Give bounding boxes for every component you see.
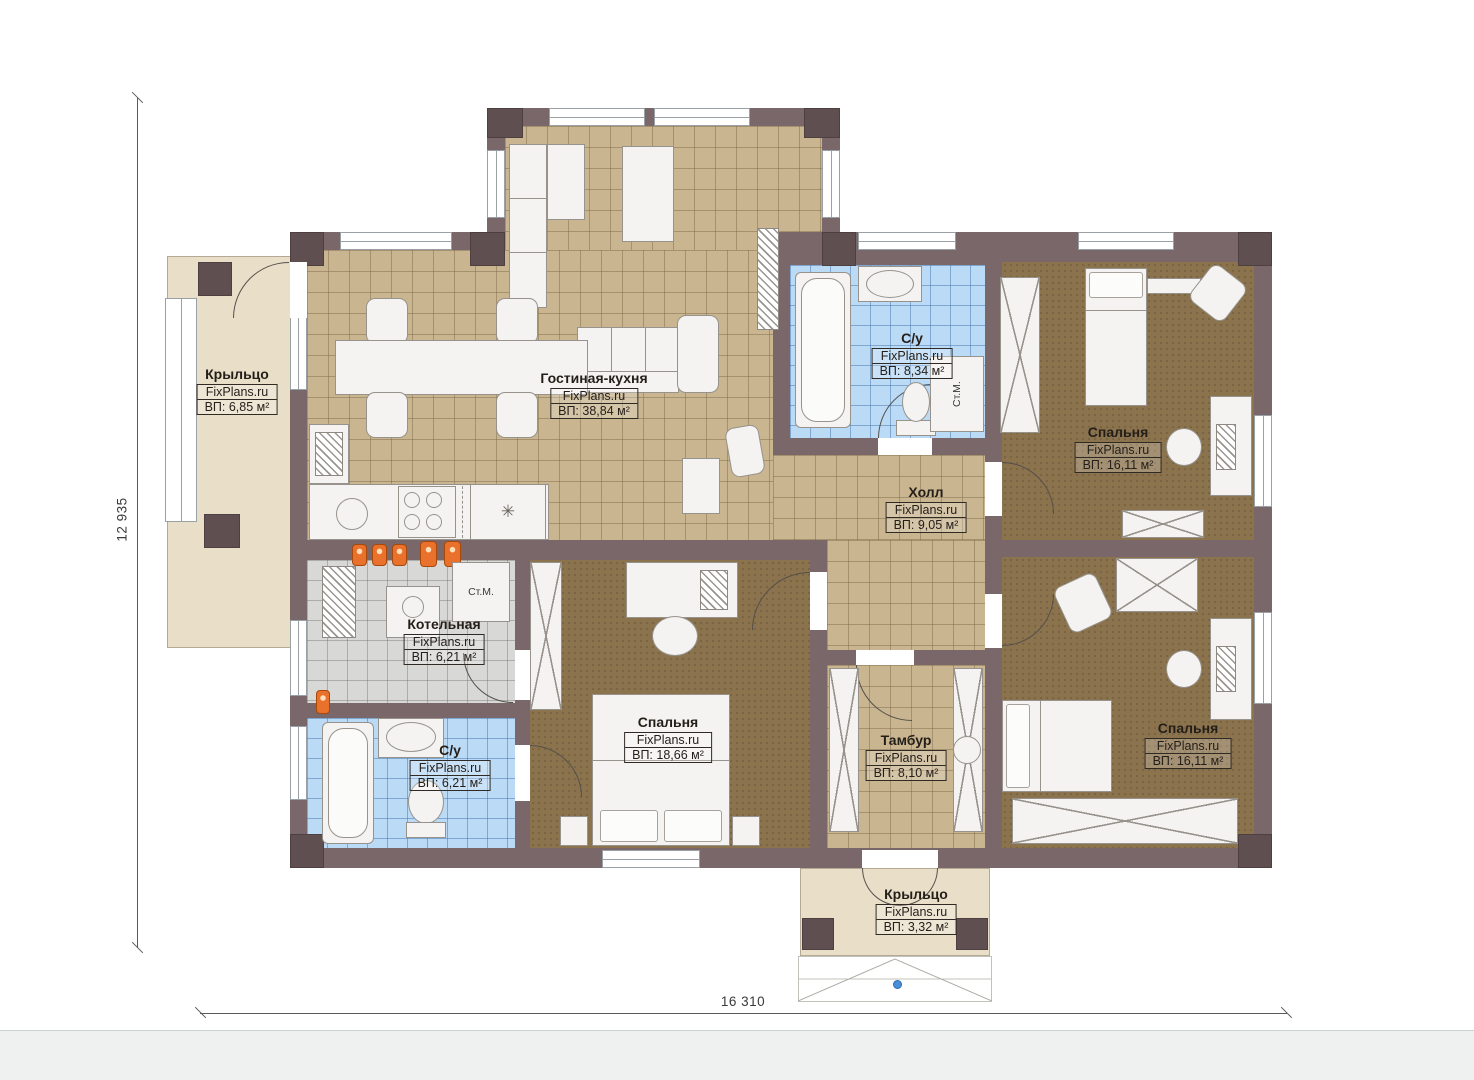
room-label-bathroom-bottom: С/у FixPlans.ru ВП: 6,21 м²: [410, 742, 491, 792]
washing-machine: Ст.М.: [452, 562, 510, 622]
watermark: FixPlans.ru: [625, 733, 711, 748]
porch-left-steps: [165, 298, 197, 522]
room-label-box: FixPlans.ru ВП: 16,11 м²: [1075, 442, 1162, 473]
bathtub-basin: [801, 278, 845, 422]
armchair: [677, 315, 719, 393]
sofa-cushion-line: [645, 327, 646, 371]
room-name: Котельная: [404, 616, 485, 632]
floor-plan-canvas: 12 935 16 310: [0, 0, 1474, 1080]
sofa-cushion-line: [509, 198, 547, 199]
desk-chair: [1166, 650, 1202, 688]
dimension-label-height: 12 935: [115, 468, 130, 572]
door-opening-bedroom-bottom-right: [985, 594, 1002, 648]
toilet: [902, 382, 930, 422]
window: [858, 232, 956, 250]
room-label-box: FixPlans.ru ВП: 6,21 м²: [404, 634, 485, 665]
room-label-bedroom-bottom-right: Спальня FixPlans.ru ВП: 16,11 м²: [1145, 720, 1232, 770]
wall-corner-block: [804, 108, 840, 138]
room-name: Спальня: [624, 714, 712, 730]
window: [654, 108, 750, 126]
door-opening-porch-bottom: [862, 850, 938, 868]
mirror: [953, 736, 981, 764]
stove-burner: [426, 514, 442, 530]
room-label-box: FixPlans.ru ВП: 9,05 м²: [886, 502, 967, 533]
dimension-line-horizontal: [200, 1013, 1287, 1014]
room-label-bedroom-top-right: Спальня FixPlans.ru ВП: 16,11 м²: [1075, 424, 1162, 474]
room-label-porch-bottom: Крыльцо FixPlans.ru ВП: 3,32 м²: [876, 886, 957, 936]
fridge-snowflake-icon: ✳: [501, 502, 515, 522]
corner-sofa-chaise: [547, 144, 585, 220]
wall-corner-block: [487, 108, 523, 138]
wardrobe-long: [1012, 798, 1238, 844]
watermark: FixPlans.ru: [867, 751, 946, 766]
bathtub: [322, 722, 374, 844]
wall-corner-block: [290, 232, 324, 266]
window: [549, 108, 645, 126]
dining-chair: [366, 298, 408, 344]
room-name: Тамбур: [866, 732, 947, 748]
room-label-living-kitchen: Гостиная-кухня FixPlans.ru ВП: 38,84 м²: [540, 370, 647, 420]
porch-column: [956, 918, 988, 950]
tv-cabinet: [622, 146, 674, 242]
blanket-line: [1040, 700, 1041, 792]
boiler-equipment: [322, 566, 356, 638]
room-label-boiler: Котельная FixPlans.ru ВП: 6,21 м²: [404, 616, 485, 666]
room-label-box: FixPlans.ru ВП: 8,10 м²: [866, 750, 947, 781]
dresser: [1122, 510, 1204, 538]
window: [290, 620, 307, 696]
door-opening-bedroom-top-right: [985, 462, 1002, 516]
porch-bottom-steps: [798, 956, 992, 1002]
desk-items: [700, 570, 728, 610]
bathtub-basin: [328, 728, 368, 838]
water-heater-dial: [402, 596, 424, 618]
room-name: Спальня: [1145, 720, 1232, 736]
sofa-cushion-line: [611, 327, 612, 371]
watermark: FixPlans.ru: [411, 761, 490, 776]
desk-chair: [1166, 428, 1202, 466]
room-label-vestibule: Тамбур FixPlans.ru ВП: 8,10 м²: [866, 732, 947, 782]
window: [340, 232, 452, 250]
wardrobe: [530, 562, 562, 710]
wall-corner-block: [470, 232, 505, 266]
room-area: ВП: 6,85 м²: [198, 400, 277, 414]
room-label-porch-left: Крыльцо FixPlans.ru ВП: 6,85 м²: [197, 366, 278, 416]
radiator-icon: [392, 544, 407, 566]
radiator-icon: [352, 544, 367, 566]
wall-corner-block: [290, 834, 324, 868]
window: [1254, 612, 1272, 704]
window: [290, 726, 307, 800]
plan-marker-dot: [893, 980, 902, 989]
stove-burner: [426, 492, 442, 508]
wall-corner-block: [1238, 834, 1272, 868]
porch-column: [802, 918, 834, 950]
room-label-box: FixPlans.ru ВП: 8,34 м²: [872, 348, 953, 379]
page-bottom-band: [0, 1031, 1474, 1080]
room-label-box: FixPlans.ru ВП: 3,32 м²: [876, 904, 957, 935]
pillow: [1089, 272, 1143, 298]
watermark: FixPlans.ru: [877, 905, 956, 920]
dining-chair: [496, 392, 538, 438]
built-in-cabinet: [757, 228, 779, 330]
watermark: FixPlans.ru: [405, 635, 484, 650]
room-area: ВП: 9,05 м²: [887, 518, 966, 532]
dining-chair: [496, 298, 538, 344]
watermark: FixPlans.ru: [873, 349, 952, 364]
desk-items: [1216, 424, 1236, 470]
hall-cabinet: [829, 668, 859, 832]
room-label-box: FixPlans.ru ВП: 6,85 м²: [197, 384, 278, 415]
nightstand: [732, 816, 760, 846]
door-opening-vestibule: [856, 650, 914, 665]
room-label-box: FixPlans.ru ВП: 16,11 м²: [1145, 738, 1232, 769]
room-area: ВП: 16,11 м²: [1076, 458, 1161, 472]
room-area: ВП: 8,10 м²: [867, 766, 946, 780]
door-opening-bathroom-bottom: [515, 745, 530, 801]
watermark: FixPlans.ru: [887, 503, 966, 518]
fridge: ✳: [470, 484, 546, 540]
watermark: FixPlans.ru: [198, 385, 277, 400]
washing-machine-label: Ст.М.: [453, 563, 509, 621]
counter-divider: [462, 486, 463, 538]
window: [1254, 415, 1272, 507]
blanket-line: [1085, 310, 1147, 311]
room-name: Гостиная-кухня: [540, 370, 647, 386]
bathtub: [795, 272, 851, 428]
wall-corner-block: [1238, 232, 1272, 266]
sink: [866, 270, 914, 298]
room-label-box: FixPlans.ru ВП: 38,84 м²: [550, 388, 638, 419]
room-name: Спальня: [1075, 424, 1162, 440]
room-name: С/у: [410, 742, 491, 758]
door-opening-bathroom-top: [878, 438, 932, 455]
window: [822, 150, 840, 218]
room-area: ВП: 6,21 м²: [405, 650, 484, 664]
coffee-table: [682, 458, 720, 514]
door-opening-boiler: [515, 650, 530, 700]
wall-corner-block: [822, 232, 856, 266]
kitchen-sink: [336, 498, 368, 530]
nightstand: [560, 816, 588, 846]
room-area: ВП: 3,32 м²: [877, 920, 956, 934]
kitchen-appliance: [315, 432, 343, 476]
door-opening-bedroom-center: [810, 572, 827, 630]
wardrobe: [1116, 558, 1198, 612]
desk-chair: [652, 616, 698, 656]
window: [602, 850, 700, 868]
porch-column: [198, 262, 232, 296]
radiator-icon: [316, 690, 330, 714]
room-name: Крыльцо: [197, 366, 278, 382]
room-name: Крыльцо: [876, 886, 957, 902]
room-name: Холл: [886, 484, 967, 500]
room-label-bathroom-top: С/у FixPlans.ru ВП: 8,34 м²: [872, 330, 953, 380]
watermark: FixPlans.ru: [551, 389, 637, 404]
porch-column: [204, 514, 240, 548]
radiator-icon: [372, 544, 387, 566]
window: [487, 150, 505, 218]
wardrobe: [1000, 277, 1040, 433]
sofa-cushion-line: [509, 252, 547, 253]
stove-burner: [404, 514, 420, 530]
pillow: [600, 810, 658, 842]
room-area: ВП: 18,66 м²: [625, 748, 711, 762]
dining-chair: [366, 392, 408, 438]
desk-items: [1216, 646, 1236, 692]
room-label-box: FixPlans.ru ВП: 18,66 м²: [624, 732, 712, 763]
radiator-icon: [420, 541, 437, 567]
watermark: FixPlans.ru: [1146, 739, 1231, 754]
room-area: ВП: 8,34 м²: [873, 364, 952, 378]
room-label-box: FixPlans.ru ВП: 6,21 м²: [410, 760, 491, 791]
corner-sofa: [509, 144, 547, 308]
room-floor-hall-lower: [827, 540, 985, 650]
room-area: ВП: 6,21 м²: [411, 776, 490, 790]
room-area: ВП: 38,84 м²: [551, 404, 637, 418]
pillow: [1006, 704, 1030, 788]
room-label-hall: Холл FixPlans.ru ВП: 9,05 м²: [886, 484, 967, 534]
door-opening-entrance-left: [290, 262, 307, 318]
stove-burner: [404, 492, 420, 508]
pillow: [664, 810, 722, 842]
window: [1078, 232, 1174, 250]
dimension-line-vertical: [137, 98, 138, 948]
watermark: FixPlans.ru: [1076, 443, 1161, 458]
room-area: ВП: 16,11 м²: [1146, 754, 1231, 768]
room-label-bedroom-bottom-center: Спальня FixPlans.ru ВП: 18,66 м²: [624, 714, 712, 764]
toilet-tank: [406, 822, 446, 838]
room-name: С/у: [872, 330, 953, 346]
